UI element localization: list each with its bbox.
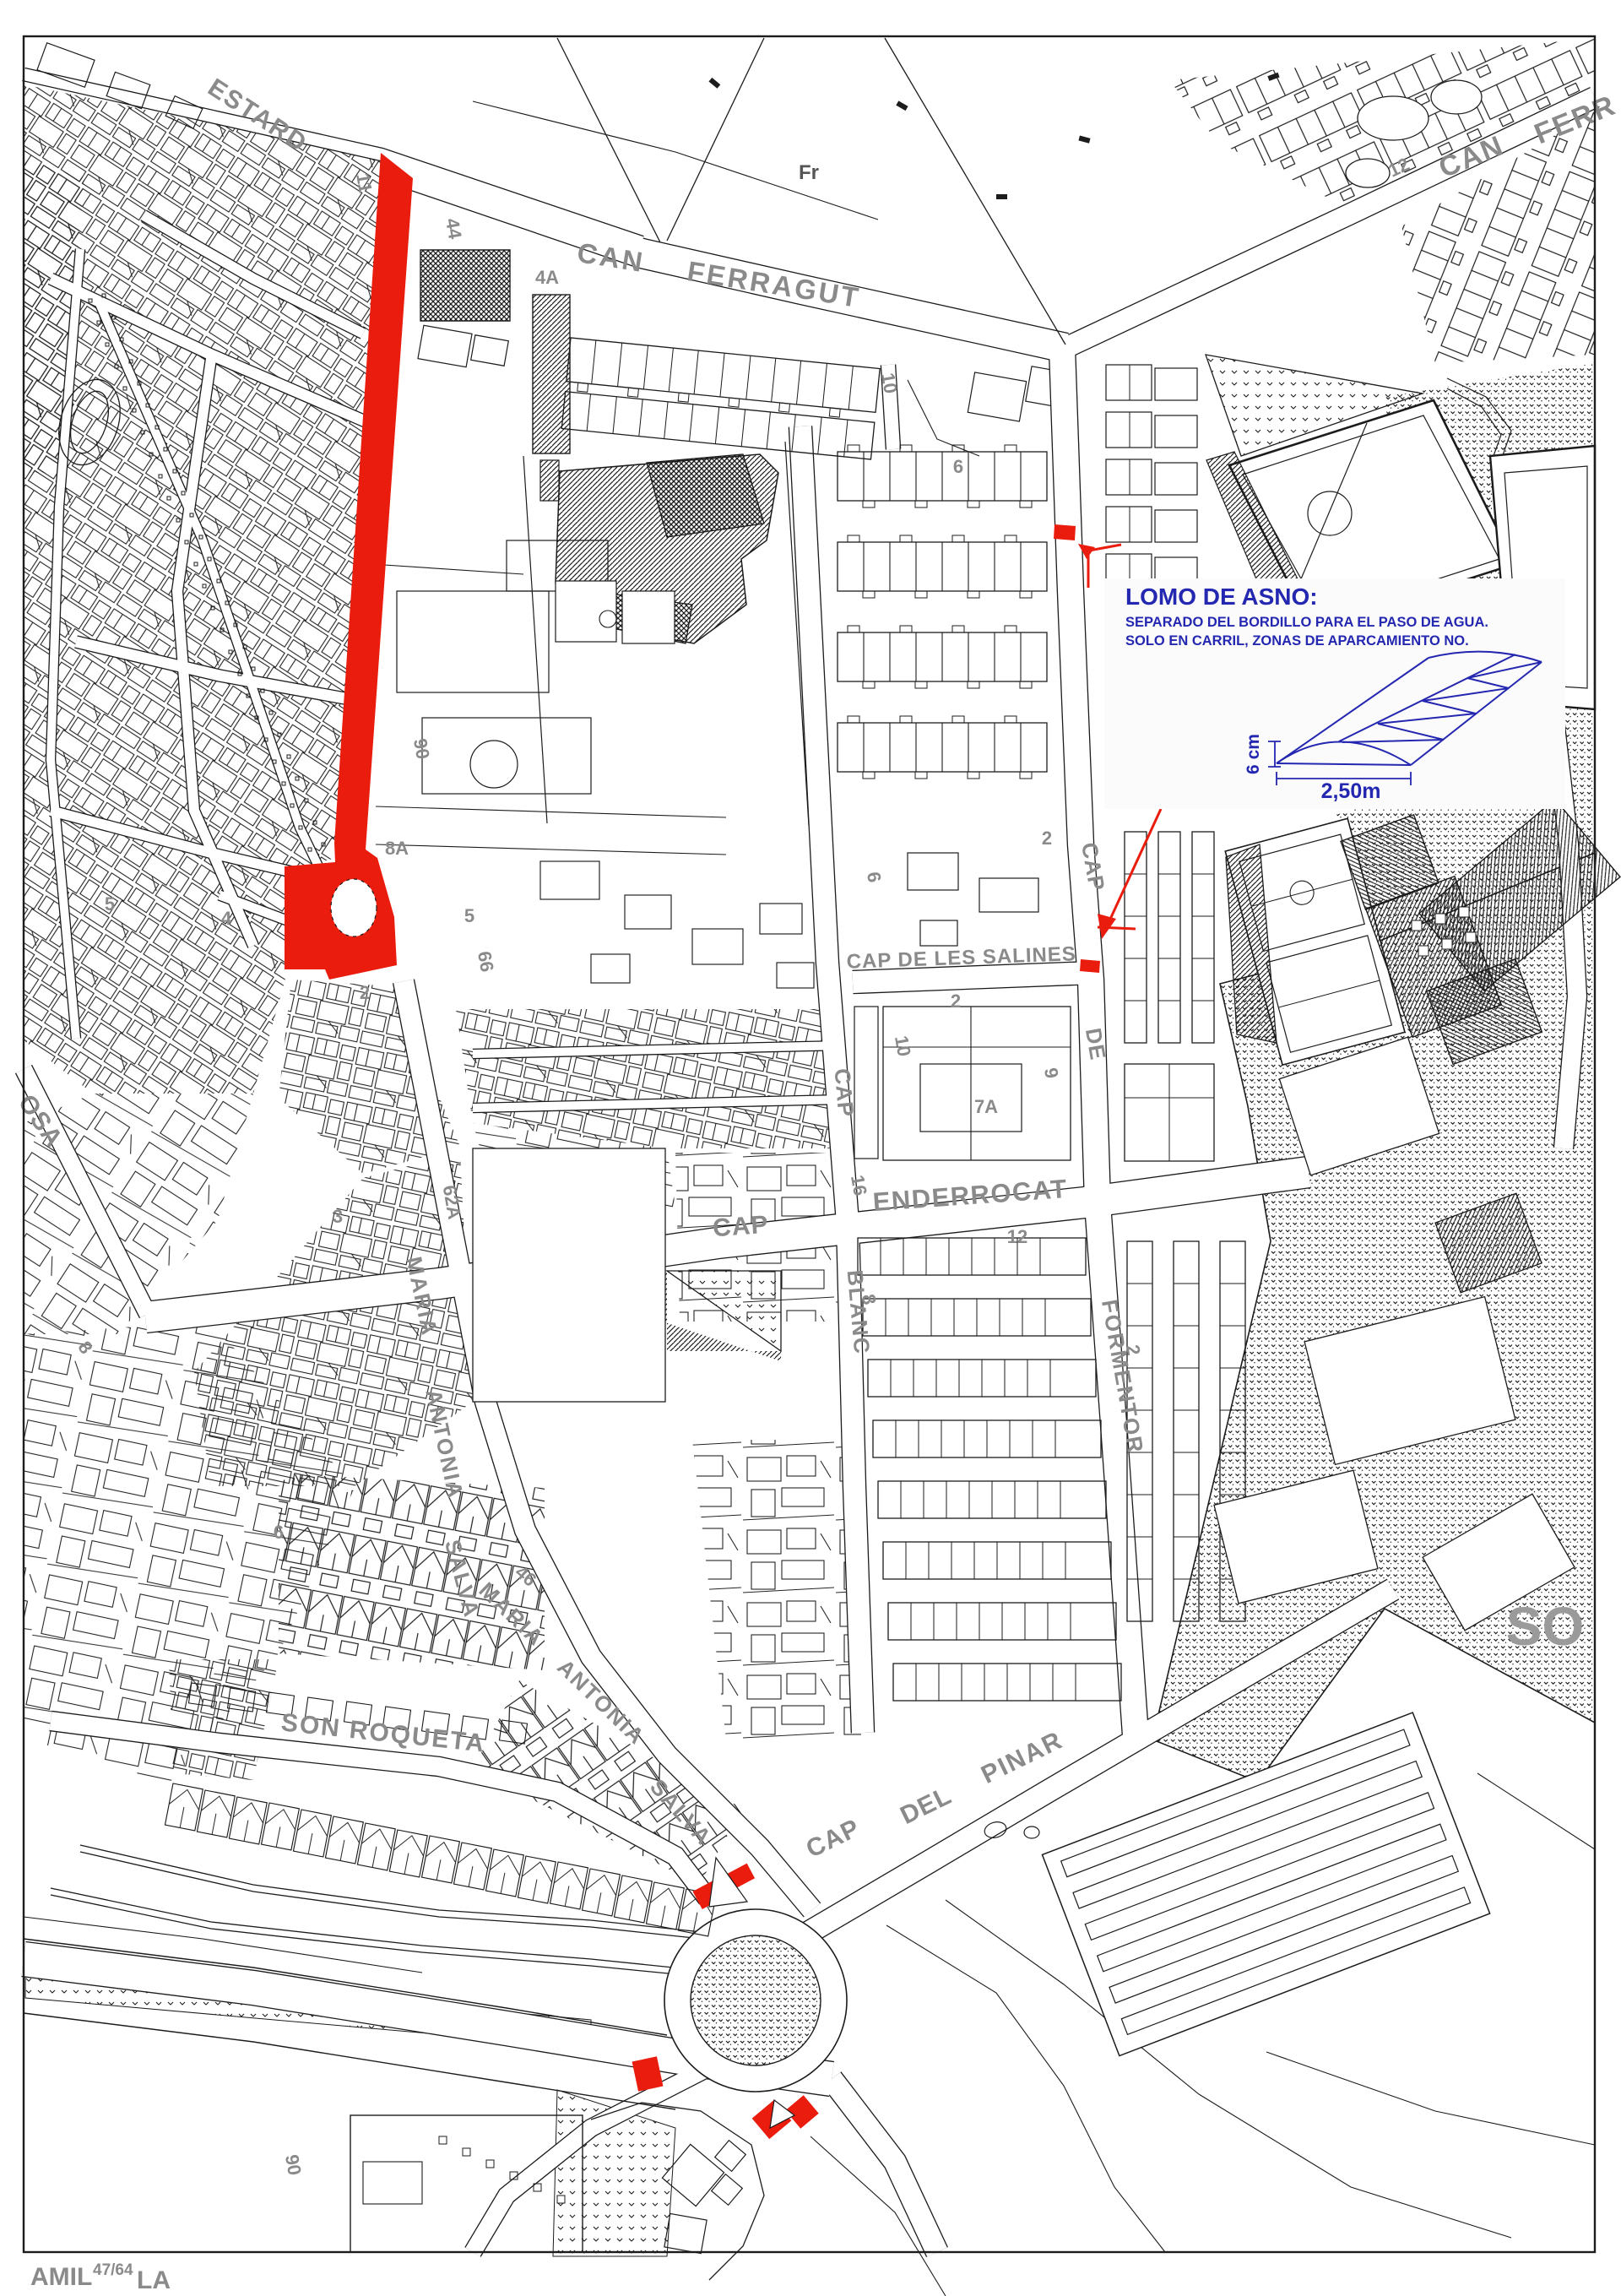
svg-text:11: 11: [352, 171, 377, 194]
svg-text:2,50m: 2,50m: [1321, 779, 1381, 803]
svg-text:2: 2: [360, 982, 370, 1003]
svg-text:12: 12: [1007, 1226, 1027, 1247]
svg-text:SEPARADO DEL BORDILLO PARA EL: SEPARADO DEL BORDILLO PARA EL PASO DE AG…: [1125, 615, 1488, 630]
svg-text:LOMO DE ASNO:: LOMO DE ASNO:: [1125, 583, 1318, 610]
svg-text:CAP: CAP: [829, 1067, 859, 1118]
svg-text:SO: SO: [1506, 1596, 1584, 1657]
svg-text:47/64: 47/64: [93, 2261, 133, 2279]
svg-text:6 cm: 6 cm: [1244, 734, 1263, 774]
svg-text:6: 6: [274, 1522, 284, 1543]
svg-text:90: 90: [281, 2152, 306, 2176]
svg-text:4A: 4A: [535, 267, 559, 288]
svg-text:4: 4: [221, 908, 232, 929]
svg-text:2: 2: [951, 991, 961, 1012]
svg-text:10: 10: [891, 1034, 915, 1057]
svg-text:AMIL: AMIL: [30, 2263, 92, 2291]
svg-text:LA: LA: [137, 2266, 171, 2294]
svg-text:66: 66: [474, 949, 498, 973]
svg-text:90: 90: [409, 736, 434, 760]
svg-text:16: 16: [847, 1173, 871, 1197]
svg-text:5: 5: [464, 905, 474, 926]
svg-text:Fr: Fr: [799, 161, 819, 184]
svg-text:6: 6: [953, 456, 963, 477]
svg-text:SOLO EN CARRIL, ZONAS DE APARC: SOLO EN CARRIL, ZONAS DE APARCAMIENTO NO…: [1125, 633, 1469, 649]
svg-text:8A: 8A: [385, 838, 409, 859]
svg-text:3: 3: [333, 1206, 343, 1227]
svg-text:2: 2: [1042, 828, 1052, 849]
svg-text:5: 5: [105, 893, 115, 915]
svg-text:10: 10: [877, 371, 902, 394]
svg-text:7A: 7A: [974, 1096, 998, 1117]
svg-text:CAP: CAP: [712, 1211, 769, 1243]
svg-text:44: 44: [442, 216, 466, 241]
